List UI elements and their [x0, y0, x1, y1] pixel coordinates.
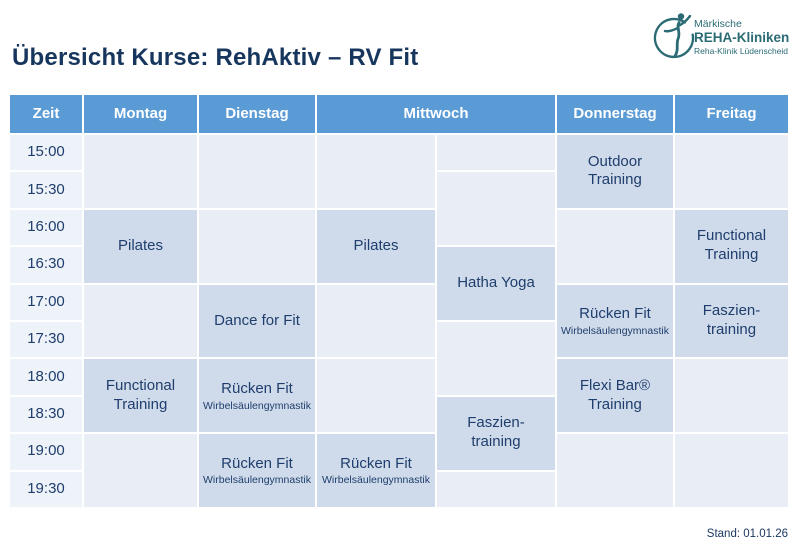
logo-text-line3: Reha-Klinik Lüdenscheid: [694, 46, 788, 56]
course-title: Donnerstag: [573, 105, 656, 124]
course-title: Mittwoch: [404, 105, 469, 124]
course-title: Rücken Fit: [221, 380, 293, 399]
time-1730: 17:30: [10, 322, 82, 357]
time-1830: 18:30: [10, 397, 82, 432]
cell-montag-1900: [84, 434, 197, 507]
header-donnerstag: Donnerstag: [557, 95, 673, 133]
cell-donnerstag-1800: Flexi Bar® Training: [557, 359, 673, 432]
cell-freitag-1700: Faszien- training: [675, 285, 788, 358]
course-title: 16:30: [27, 255, 65, 274]
cell-mittwoch-1-1800: [317, 359, 435, 432]
course-title: 17:30: [27, 330, 65, 349]
course-title: Montag: [114, 105, 167, 124]
course-title: Faszien- training: [467, 414, 525, 452]
course-subtitle: Wirbelsäulengymnastik: [561, 325, 669, 337]
course-title: 17:00: [27, 293, 65, 312]
cell-dienstag-1700: Dance for Fit: [199, 285, 315, 358]
cell-freitag-1800: [675, 359, 788, 432]
cell-freitag-1600: Functional Training: [675, 210, 788, 283]
cell-dienstag-1600: [199, 210, 315, 283]
person-in-circle-icon: [655, 13, 693, 57]
course-title: 15:30: [27, 181, 65, 200]
time-1600: 16:00: [10, 210, 82, 245]
header-mittwoch: Mittwoch: [317, 95, 555, 133]
course-title: Dance for Fit: [214, 312, 300, 331]
course-title: Functional Training: [106, 377, 175, 415]
time-1700: 17:00: [10, 285, 82, 320]
header-montag: Montag: [84, 95, 197, 133]
time-1930: 19:30: [10, 472, 82, 507]
course-title: Flexi Bar® Training: [580, 377, 650, 415]
cell-freitag-1900: [675, 434, 788, 507]
cell-mittwoch-2-1530: [437, 172, 555, 245]
cell-mittwoch-1-1900: Rücken FitWirbelsäulengymnastik: [317, 434, 435, 507]
clinic-logo: Märkische REHA-Kliniken Reha-Klinik Lüde…: [650, 6, 795, 64]
logo-text-line1: Märkische: [694, 18, 742, 30]
course-title: Rücken Fit: [221, 455, 293, 474]
time-1800: 18:00: [10, 359, 82, 394]
header-zeit: Zeit: [10, 95, 82, 133]
cell-mittwoch-2-1500: [437, 135, 555, 170]
course-title: Zeit: [33, 105, 60, 124]
cell-donnerstag-1700: Rücken FitWirbelsäulengymnastik: [557, 285, 673, 358]
course-subtitle: Wirbelsäulengymnastik: [322, 474, 430, 486]
cell-mittwoch-1-1500: [317, 135, 435, 208]
course-subtitle: Wirbelsäulengymnastik: [203, 474, 311, 486]
course-title: Rücken Fit: [340, 455, 412, 474]
status-date: Stand: 01.01.26: [707, 528, 788, 540]
course-overview-page: Übersicht Kurse: RehAktiv – RV Fit Märki…: [0, 0, 800, 554]
cell-montag-1600: Pilates: [84, 210, 197, 283]
time-1630: 16:30: [10, 247, 82, 282]
course-title: 18:00: [27, 368, 65, 387]
cell-donnerstag-1600: [557, 210, 673, 283]
course-title: 18:30: [27, 405, 65, 424]
header-freitag: Freitag: [675, 95, 788, 133]
course-subtitle: Wirbelsäulengymnastik: [203, 400, 311, 412]
cell-donnerstag-1900: [557, 434, 673, 507]
cell-mittwoch-2-1630: Hatha Yoga: [437, 247, 555, 320]
cell-donnerstag-1500: Outdoor Training: [557, 135, 673, 208]
course-title: Rücken Fit: [579, 305, 651, 324]
cell-dienstag-1900: Rücken FitWirbelsäulengymnastik: [199, 434, 315, 507]
time-1530: 15:30: [10, 172, 82, 207]
course-title: Outdoor Training: [588, 153, 642, 191]
cell-dienstag-1800: Rücken FitWirbelsäulengymnastik: [199, 359, 315, 432]
time-1900: 19:00: [10, 434, 82, 469]
header-dienstag: Dienstag: [199, 95, 315, 133]
time-1500: 15:00: [10, 135, 82, 170]
cell-montag-1700: [84, 285, 197, 358]
cell-montag-1800: Functional Training: [84, 359, 197, 432]
cell-montag-1500: [84, 135, 197, 208]
course-title: Freitag: [706, 105, 756, 124]
course-title: Dienstag: [225, 105, 288, 124]
cell-mittwoch-2-1730: [437, 322, 555, 395]
cell-mittwoch-2-1930: [437, 472, 555, 507]
page-title: Übersicht Kurse: RehAktiv – RV Fit: [12, 44, 418, 72]
course-title: Pilates: [353, 237, 398, 256]
cell-mittwoch-1-1700: [317, 285, 435, 358]
schedule-table: ZeitMontagDienstagMittwochDonnerstagFrei…: [10, 95, 788, 507]
course-title: Pilates: [118, 237, 163, 256]
cell-freitag-1500: [675, 135, 788, 208]
cell-dienstag-1500: [199, 135, 315, 208]
cell-mittwoch-2-1830: Faszien- training: [437, 397, 555, 470]
cell-mittwoch-1-1600: Pilates: [317, 210, 435, 283]
course-title: Hatha Yoga: [457, 274, 535, 293]
course-title: 15:00: [27, 143, 65, 162]
logo-text-line2: REHA-Kliniken: [694, 30, 789, 45]
course-title: Faszien- training: [703, 302, 761, 340]
course-title: 19:30: [27, 480, 65, 499]
course-title: 19:00: [27, 442, 65, 461]
course-title: 16:00: [27, 218, 65, 237]
course-title: Functional Training: [697, 227, 766, 265]
